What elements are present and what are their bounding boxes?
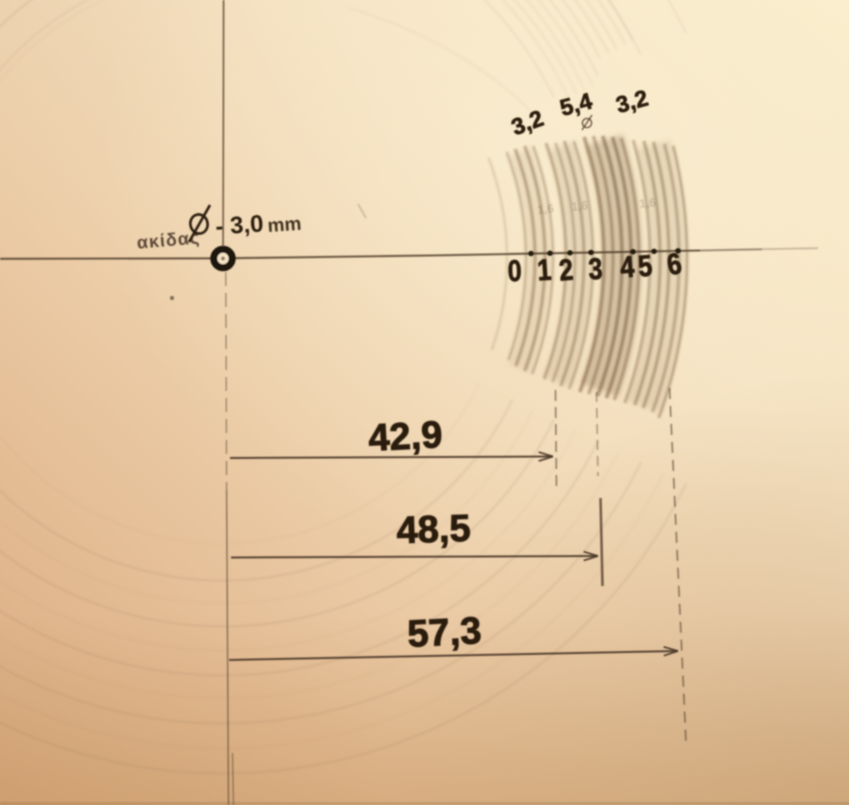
svg-text:48,5: 48,5 — [396, 508, 471, 553]
svg-text:4: 4 — [619, 251, 636, 285]
svg-text:2: 2 — [558, 253, 575, 287]
svg-text:3: 3 — [588, 253, 604, 287]
svg-text:mm: mm — [267, 214, 302, 237]
svg-text:42,9: 42,9 — [367, 414, 443, 460]
svg-text:1: 1 — [536, 254, 552, 288]
svg-text:0: 0 — [507, 255, 522, 288]
svg-text:57,3: 57,3 — [406, 610, 482, 656]
svg-text:1,6: 1,6 — [639, 195, 657, 211]
svg-text:- 3,0: - 3,0 — [215, 210, 265, 240]
svg-text:1,6: 1,6 — [571, 198, 589, 214]
svg-text:5: 5 — [637, 249, 654, 283]
svg-text:1,6: 1,6 — [537, 201, 555, 217]
